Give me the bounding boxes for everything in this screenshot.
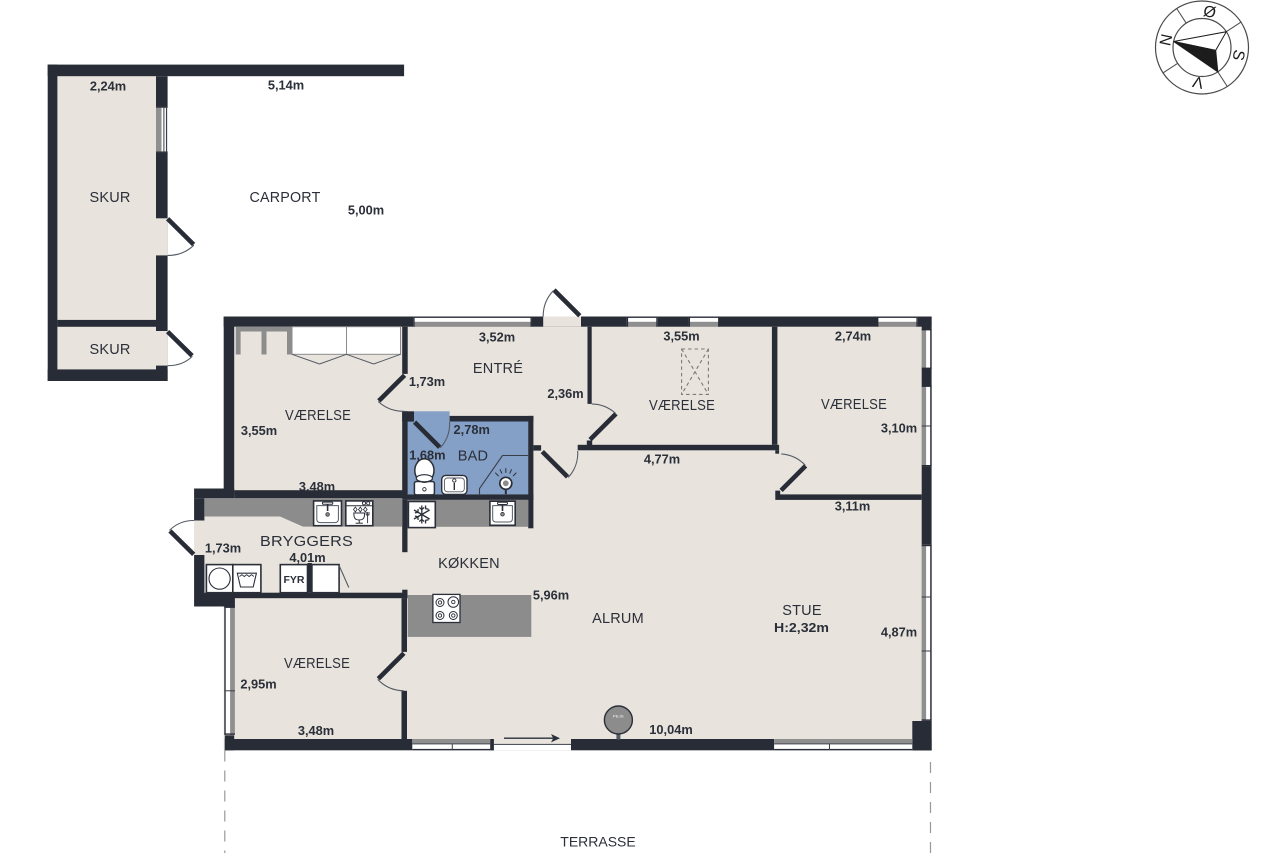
svg-text:3,55m: 3,55m [241, 423, 277, 438]
svg-text:2,78m: 2,78m [454, 422, 490, 437]
svg-text:BAD: BAD [458, 448, 488, 464]
svg-text:2,36m: 2,36m [547, 386, 583, 401]
svg-text:FYR: FYR [284, 574, 305, 586]
svg-text:TERRASSE: TERRASSE [560, 834, 635, 850]
svg-text:3,11m: 3,11m [835, 499, 871, 514]
svg-text:10,04m: 10,04m [649, 722, 692, 737]
svg-text:3,10m: 3,10m [881, 421, 917, 436]
svg-text:5,96m: 5,96m [533, 588, 569, 603]
svg-text:2,24m: 2,24m [90, 79, 126, 94]
svg-text:4,77m: 4,77m [644, 452, 680, 467]
svg-text:SKUR: SKUR [89, 342, 130, 358]
svg-text:BRYGGERS: BRYGGERS [260, 534, 353, 550]
svg-text:5,14m: 5,14m [268, 78, 304, 93]
svg-text:ENTRÉ: ENTRÉ [473, 360, 523, 377]
svg-text:1,73m: 1,73m [409, 374, 445, 389]
svg-text:VÆRELSE: VÆRELSE [284, 656, 350, 672]
svg-text:SKUR: SKUR [89, 190, 130, 206]
svg-text:2,74m: 2,74m [835, 329, 871, 344]
svg-text:VÆRELSE: VÆRELSE [821, 397, 887, 413]
svg-text:H:2,32m: H:2,32m [774, 620, 829, 635]
svg-text:4,01m: 4,01m [289, 550, 325, 565]
svg-text:1,73m: 1,73m [205, 541, 241, 556]
svg-text:KØKKEN: KØKKEN [438, 556, 500, 572]
svg-text:ALRUM: ALRUM [592, 611, 644, 627]
svg-text:4,87m: 4,87m [881, 625, 917, 640]
svg-text:5,00m: 5,00m [348, 203, 384, 218]
svg-text:CARPORT: CARPORT [250, 190, 321, 206]
svg-text:VÆRELSE: VÆRELSE [649, 398, 715, 414]
svg-text:3,55m: 3,55m [663, 329, 699, 344]
svg-text:3,48m: 3,48m [298, 723, 334, 738]
svg-text:2,95m: 2,95m [240, 677, 276, 692]
svg-text:STUE: STUE [782, 603, 822, 619]
svg-text:1,68m: 1,68m [409, 447, 445, 462]
svg-text:3,52m: 3,52m [479, 330, 515, 345]
svg-text:3,48m: 3,48m [299, 479, 335, 494]
svg-text:VÆRELSE: VÆRELSE [285, 408, 351, 424]
svg-text:PEJS: PEJS [613, 714, 624, 719]
